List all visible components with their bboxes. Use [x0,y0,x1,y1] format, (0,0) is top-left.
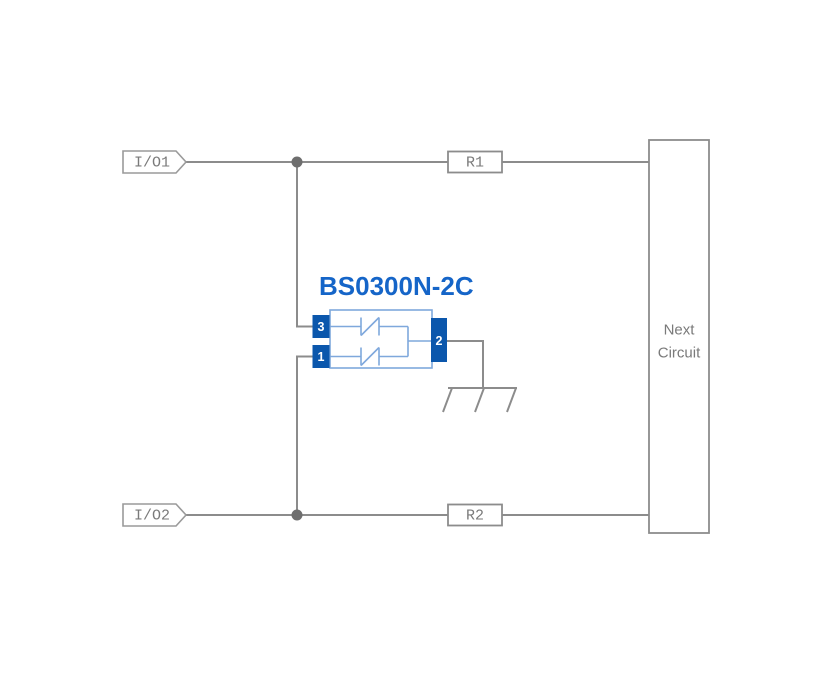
chassis-ground-icon [443,388,517,412]
component-bs0300n-2c: BS0300N-2C 3 [313,271,474,368]
pin-1: 1 [313,345,330,368]
terminal-io2: I/O2 [123,504,186,526]
wire-io1-to-pin3 [297,162,313,327]
next-circuit-label-line1: Next [664,322,696,339]
component-body [330,310,432,368]
ground-hatch-3 [507,388,516,412]
circuit-diagram: I/O1 I/O2 R1 R2 Next Circuit BS0300N-2C [0,0,832,675]
schematic-page: I/O1 I/O2 R1 R2 Next Circuit BS0300N-2C [0,0,832,675]
terminal-io1-label: I/O1 [134,155,170,172]
ground-hatch-1 [443,388,452,412]
component-title: BS0300N-2C [319,271,474,301]
pin-2-label: 2 [436,334,443,348]
pin-1-label: 1 [318,350,325,364]
resistor-r2-label: R2 [466,508,484,525]
next-circuit-block: Next Circuit [649,140,709,533]
pin-2: 2 [431,318,447,362]
pin-3-label: 3 [318,320,325,334]
wire-pin2-to-ground [447,341,483,388]
junction-dot-top [292,157,303,168]
resistor-r1: R1 [448,152,502,173]
junction-dot-bottom [292,510,303,521]
next-circuit-label-line2: Circuit [658,345,701,362]
ground-hatch-2 [475,388,484,412]
pin-3: 3 [313,315,330,338]
terminal-io2-label: I/O2 [134,508,170,525]
wire-io2-to-pin1 [297,357,313,516]
resistor-r1-label: R1 [466,155,484,172]
resistor-r2: R2 [448,505,502,526]
terminal-io1: I/O1 [123,151,186,173]
